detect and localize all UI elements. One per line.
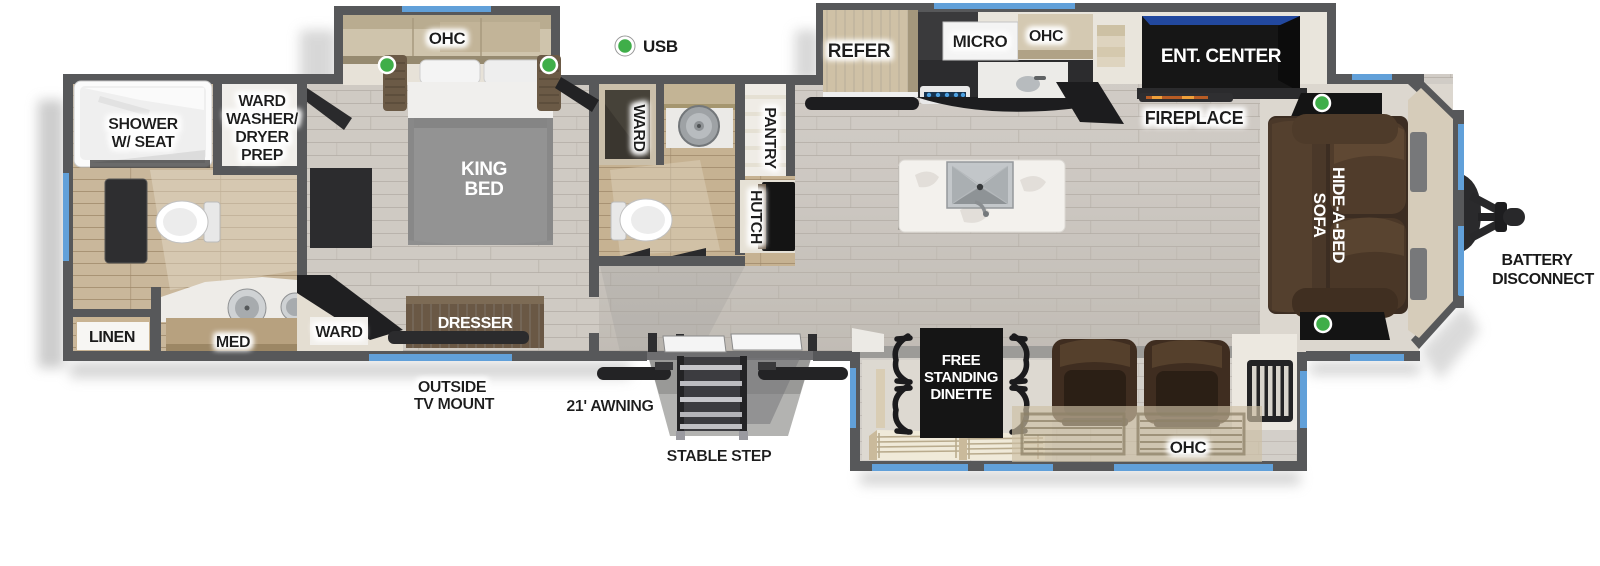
svg-text:USB: USB	[643, 37, 678, 56]
svg-text:OHC: OHC	[429, 29, 466, 48]
svg-text:WARD: WARD	[630, 104, 647, 151]
svg-text:MICRO: MICRO	[953, 32, 1008, 51]
svg-text:FIREPLACE: FIREPLACE	[1145, 108, 1244, 128]
svg-text:ENT. CENTER: ENT. CENTER	[1161, 46, 1282, 67]
svg-text:DRESSER: DRESSER	[438, 315, 513, 332]
svg-text:SHOWERW/ SEAT: SHOWERW/ SEAT	[108, 116, 178, 151]
svg-text:LINEN: LINEN	[89, 329, 135, 346]
svg-text:PANTRY: PANTRY	[761, 107, 778, 169]
svg-text:REFER: REFER	[828, 41, 891, 62]
svg-text:OHC: OHC	[1170, 438, 1207, 457]
svg-text:WARD: WARD	[315, 324, 362, 341]
svg-text:OUTSIDETV MOUNT: OUTSIDETV MOUNT	[414, 379, 495, 413]
svg-text:21' AWNING: 21' AWNING	[566, 398, 653, 415]
svg-text:HUTCH: HUTCH	[747, 190, 764, 244]
svg-text:STABLE STEP: STABLE STEP	[667, 448, 772, 465]
svg-text:KINGBED: KINGBED	[461, 159, 507, 200]
svg-text:OHC: OHC	[1029, 28, 1064, 45]
svg-text:MED: MED	[216, 334, 250, 351]
